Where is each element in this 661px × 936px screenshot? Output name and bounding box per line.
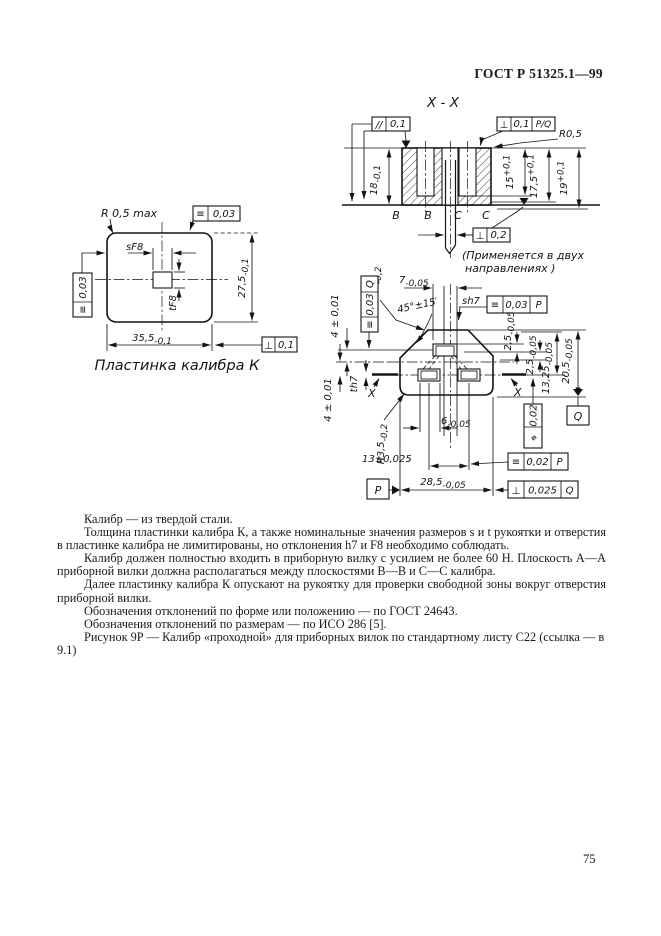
perpendicularity-frame-plate: ⊥ 0,1 bbox=[216, 337, 298, 352]
position-symbol: ⌖ bbox=[530, 432, 537, 445]
document-page: ГОСТ Р 51325.1—99 X - X bbox=[0, 0, 661, 936]
dim-4-lower: 4 ± 0,01 bbox=[323, 344, 340, 422]
perp2-value: 0,2 bbox=[491, 230, 507, 241]
perp-symbol: ⊥ bbox=[500, 120, 509, 131]
svg-text:0,02: 0,02 bbox=[526, 457, 548, 468]
symmetry-frame-p: ≡ 0,03 P bbox=[487, 296, 547, 313]
section-label-x-left: X bbox=[367, 387, 376, 400]
svg-text:2,5-0,05: 2,5-0,05 bbox=[525, 335, 539, 374]
svg-text:0,02: 0,02 bbox=[529, 404, 540, 426]
perp-symbol: ⊥ bbox=[512, 486, 521, 497]
svg-text:P: P bbox=[535, 300, 542, 311]
svg-text:15+0,1: 15+0,1 bbox=[503, 155, 517, 190]
section-title: X - X bbox=[426, 95, 460, 111]
dim-2-5-b: 2,5-0,05 bbox=[525, 335, 540, 374]
plane-label-b2: B bbox=[424, 209, 432, 222]
note-line-2: направлениях ) bbox=[465, 262, 555, 275]
symmetry-frame-p2: ≡ 0,02 P bbox=[471, 453, 568, 470]
flatness-frame-left: 0,03 ≡ bbox=[73, 253, 105, 317]
svg-text:7-0,05: 7-0,05 bbox=[399, 275, 429, 289]
datum-triangle bbox=[573, 389, 583, 396]
plate-caption: Пластинка калибра К bbox=[95, 358, 261, 374]
dim-20-5: 20,5-0,05 Q bbox=[561, 332, 589, 426]
dim-17-5: 17,5+0,1 bbox=[491, 150, 556, 203]
symmetry-symbol: ≡ bbox=[512, 457, 520, 468]
dim-27-5: 27,5-0,1 bbox=[214, 233, 258, 322]
perpendicularity-frame-q: ⊥ 0,025 Q bbox=[496, 481, 579, 498]
gauge-body bbox=[400, 330, 493, 395]
gauge-face-view: X X 7-0,05 R3-0,2 45° bbox=[323, 266, 589, 499]
plane-label-c2: C bbox=[482, 209, 490, 222]
technical-drawing: X - X // 0,1 bbox=[0, 0, 661, 936]
svg-text:th7: th7 bbox=[349, 375, 360, 392]
svg-text:0,03: 0,03 bbox=[505, 300, 527, 311]
svg-text:2,5-0,05: 2,5-0,05 bbox=[503, 311, 517, 350]
svg-text:19+0,1: 19+0,1 bbox=[557, 161, 571, 196]
dim-2-5-a: 2,5-0,05 bbox=[503, 311, 517, 364]
paragraph: Калибр должен полностью входить в прибор… bbox=[57, 552, 606, 578]
plane-label-c1: C bbox=[454, 209, 462, 222]
page-number: 75 bbox=[583, 852, 596, 867]
svg-text:13,25-0,05: 13,25-0,05 bbox=[541, 342, 555, 394]
flatness-value: 0,03 bbox=[78, 276, 89, 298]
plate-hole bbox=[153, 272, 172, 288]
symmetry-frame-q: Q 0,03 ≡ bbox=[361, 276, 378, 348]
svg-text:18-0,1: 18-0,1 bbox=[369, 165, 383, 195]
paragraph: Толщина пластинки калибра К, а также ном… bbox=[57, 526, 606, 552]
svg-text:0,03: 0,03 bbox=[365, 293, 376, 315]
svg-text:20,5-0,05: 20,5-0,05 bbox=[561, 338, 575, 384]
body-text: Калибр — из твердой стали. Толщина пласт… bbox=[57, 513, 606, 657]
datum-q-box: Q bbox=[574, 410, 583, 423]
perp-symbol: ⊥ bbox=[264, 341, 273, 352]
datum-triangle bbox=[392, 486, 400, 495]
paragraph: Далее пластинку калибра К опускают на ру… bbox=[57, 578, 606, 604]
svg-text:sF8: sF8 bbox=[126, 242, 143, 253]
figure-caption: Рисунок 9Р — Калибр «проходной» для приб… bbox=[57, 631, 606, 657]
radius-label: R0,5 bbox=[559, 129, 582, 140]
symmetry-symbol: ≡ bbox=[365, 320, 376, 328]
position-tolerance-frame: 0,02 ⌖ bbox=[524, 379, 542, 449]
xx-section-view: X - X // 0,1 bbox=[342, 95, 600, 275]
svg-text:17,5+0,1: 17,5+0,1 bbox=[527, 154, 541, 198]
symmetry-symbol: ≡ bbox=[78, 305, 89, 313]
dim-13-25: 13,25-0,05 bbox=[541, 334, 557, 394]
dim-6: 6-0,05 bbox=[403, 383, 471, 432]
svg-text:tF8: tF8 bbox=[168, 295, 179, 311]
radius-max-label: R 0,5 max bbox=[101, 207, 158, 220]
svg-text:4 ± 0,01: 4 ± 0,01 bbox=[323, 378, 334, 421]
svg-text:28,5-0,05: 28,5-0,05 bbox=[420, 477, 466, 491]
svg-text:sh7: sh7 bbox=[462, 296, 481, 307]
plate-k-view: R 0,5 max ≡ 0,03 sF8 bbox=[73, 206, 297, 374]
perp-datum: P/Q bbox=[536, 120, 552, 130]
perp2-symbol: ⊥ bbox=[476, 231, 485, 242]
dim-th7: th7 bbox=[349, 360, 366, 392]
note-line-1: (Применяется в двух bbox=[462, 249, 584, 262]
datum-triangle bbox=[402, 141, 411, 149]
paragraph: Обозначения отклонений по размерам — по … bbox=[57, 618, 606, 631]
dim-4-upper: 4 ± 0,01 bbox=[330, 294, 347, 376]
dim-18: 18-0,1 bbox=[369, 150, 389, 204]
flatness-value: 0,03 bbox=[213, 209, 235, 220]
datum-triangle bbox=[520, 198, 529, 205]
perpendicularity-frame-top: ⊥ 0,1 P/Q bbox=[481, 117, 556, 146]
perp-value: 0,1 bbox=[278, 340, 294, 351]
flatness-frame-top: ≡ 0,03 bbox=[190, 206, 240, 230]
dim-sh7: sh7 bbox=[459, 296, 488, 320]
svg-text:27,5-0,1: 27,5-0,1 bbox=[237, 258, 251, 298]
svg-text:Q: Q bbox=[365, 280, 376, 288]
datum-p-box: P bbox=[375, 484, 382, 497]
svg-text:4 ± 0,01: 4 ± 0,01 bbox=[330, 294, 341, 337]
perp-value: 0,1 bbox=[514, 119, 530, 130]
symmetry-symbol: ≡ bbox=[196, 209, 204, 220]
svg-text:Q: Q bbox=[566, 486, 574, 497]
parallel-value: 0,1 bbox=[390, 119, 406, 130]
svg-text:0,025: 0,025 bbox=[528, 486, 557, 497]
svg-text:P: P bbox=[556, 457, 563, 468]
symmetry-symbol: ≡ bbox=[491, 300, 499, 311]
dim-35-5: 35,5-0,1 bbox=[107, 324, 212, 351]
plane-label-b1: B bbox=[392, 209, 400, 222]
paragraph: Обозначения отклонений по форме или поло… bbox=[57, 605, 606, 618]
